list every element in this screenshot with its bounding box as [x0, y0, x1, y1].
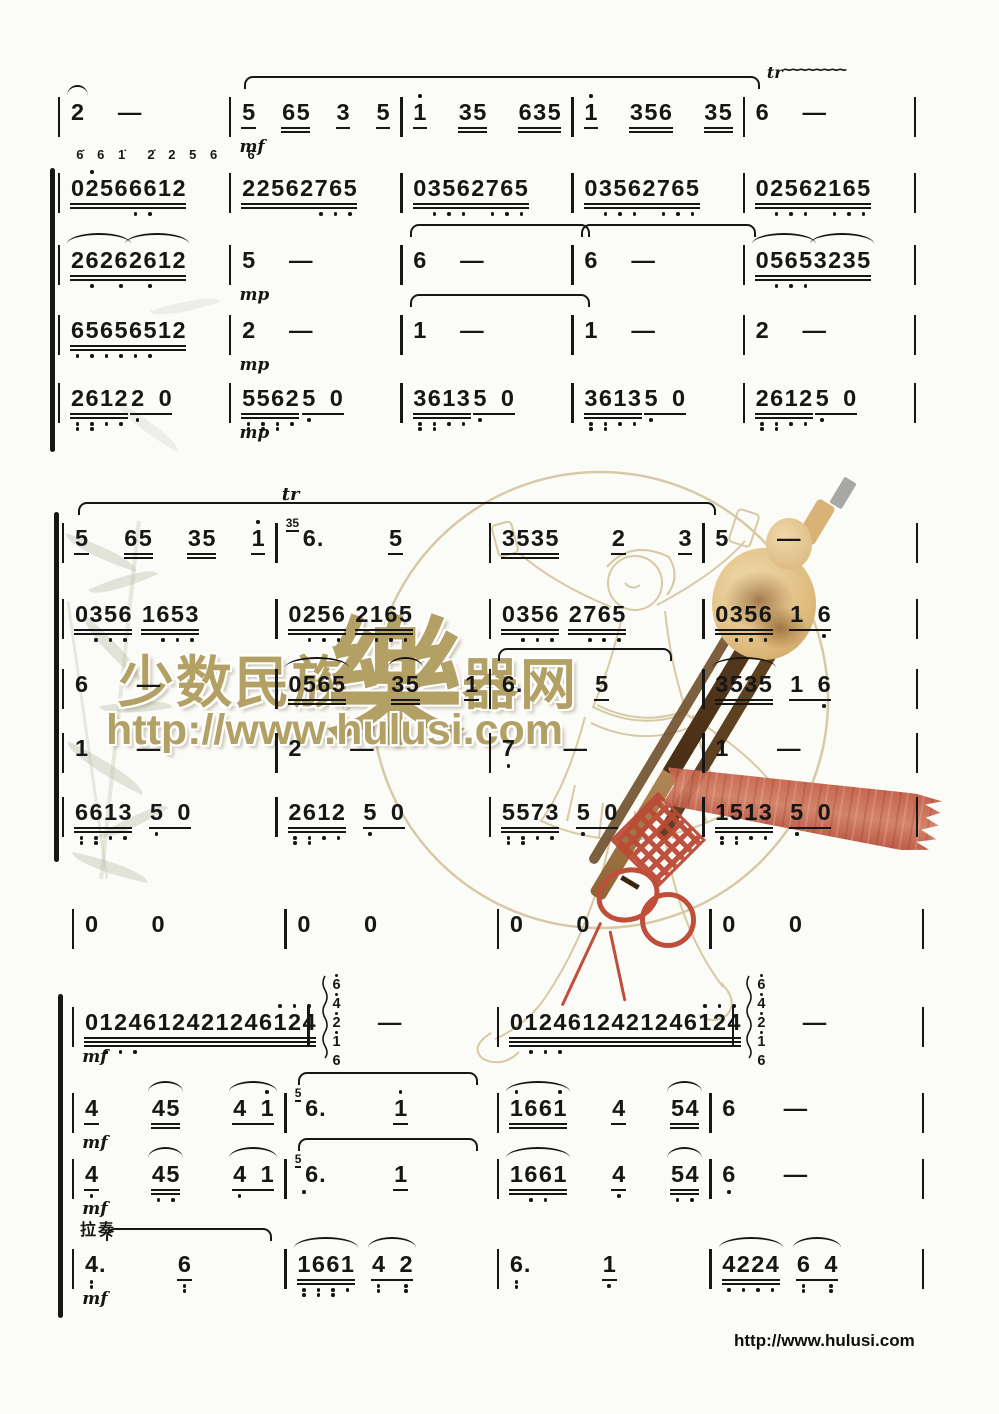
dot-cell	[151, 902, 166, 910]
dots-above	[130, 376, 172, 384]
note-group: —	[801, 90, 827, 125]
dot-cell	[500, 376, 515, 384]
dot-cell	[518, 90, 533, 98]
measure: 4.6mf	[74, 1242, 284, 1293]
octave-dot	[308, 836, 312, 840]
sheet-music-page: 少数民族 樂 器网 http://www.hulusi.com 2—56535m…	[0, 0, 999, 1414]
octave-dot	[190, 638, 194, 642]
note-digit: 5	[856, 175, 871, 201]
note-digits: 6	[413, 246, 428, 273]
dot-cell	[758, 790, 773, 798]
octave-dot	[433, 212, 437, 216]
note-digit: 4	[84, 1161, 99, 1187]
dots-above	[376, 90, 391, 98]
note-group: 35	[391, 662, 420, 705]
dot-cell	[584, 212, 599, 216]
note-digits: —	[776, 734, 802, 761]
dynamic-marking: mf	[82, 1047, 107, 1067]
octave-dot	[727, 1190, 731, 1194]
octave-dot	[822, 634, 826, 638]
octave-dot	[505, 212, 509, 216]
note-group: 1	[602, 1242, 617, 1289]
staff-row: 2—56535mf135635135635tr~~~~~~~~6—	[58, 90, 916, 137]
dot-cell	[118, 790, 133, 798]
dots-below	[584, 209, 642, 216]
note-digit: 2	[128, 247, 143, 273]
note-digit: 6	[538, 1161, 553, 1187]
note-digits: —	[349, 734, 375, 761]
staff-row: 4.6mf1661426.1422464	[72, 1242, 924, 1297]
beam-line	[722, 1279, 780, 1281]
beam-line	[142, 1045, 200, 1047]
dot-cell	[817, 592, 832, 600]
octave-dot	[581, 832, 585, 836]
octave-dot	[90, 284, 94, 288]
note-digit: 3	[532, 99, 547, 125]
dot-cell	[151, 1198, 166, 1202]
dot-cell	[157, 1000, 172, 1008]
dot-cell	[285, 422, 300, 431]
dot-cell	[471, 212, 486, 216]
note-digits: 0565	[288, 670, 346, 697]
dot-cell	[856, 212, 871, 216]
note-digits: —	[459, 316, 485, 343]
dots-below	[288, 635, 346, 642]
dot-cell	[377, 1000, 403, 1008]
octave-dot	[157, 1198, 161, 1202]
dot-cell	[755, 422, 770, 431]
dots-above	[501, 516, 559, 524]
note-digits: 7	[501, 734, 516, 761]
note-digits: 6	[584, 246, 599, 273]
octave-dot	[155, 832, 159, 836]
dot-cell	[782, 1152, 808, 1160]
dots-above	[251, 516, 266, 524]
octave-dot	[760, 993, 763, 996]
dot-cell	[671, 212, 686, 216]
note-digit: 1	[715, 799, 730, 825]
grace-note: 5	[295, 1153, 302, 1168]
grace-run: 6	[247, 147, 259, 162]
dot-cell	[149, 832, 164, 836]
arpeggio-wavy-line	[744, 974, 753, 1060]
note-digits: 0	[576, 910, 591, 937]
note-digits: 6124	[258, 1008, 316, 1035]
dots-below	[128, 351, 186, 358]
phrase-slur	[581, 224, 756, 237]
octave-dot	[607, 1284, 611, 1288]
octave-dot	[602, 638, 606, 642]
dots-above	[801, 90, 827, 98]
note-digit: 0	[788, 911, 803, 937]
note-digit: —	[377, 1009, 403, 1035]
note-digit: 2	[625, 1009, 640, 1035]
dot-cell	[74, 836, 89, 845]
dots-below	[130, 415, 172, 422]
dot-cell	[331, 790, 346, 798]
note-group: 635	[518, 90, 562, 133]
octave-dot	[109, 836, 113, 840]
dot-cell	[287, 1000, 302, 1008]
dot-cell	[813, 212, 828, 216]
dot-cell	[516, 592, 531, 600]
dot-cell	[671, 376, 686, 384]
note-digits: 50	[815, 384, 857, 411]
dot-cell	[143, 284, 158, 288]
octave-dot	[727, 1288, 731, 1292]
dot-cell	[118, 836, 133, 845]
note-group: 0356	[715, 592, 773, 642]
beam-line	[200, 1045, 258, 1047]
beam-line	[128, 275, 186, 277]
measure: 353523	[491, 516, 702, 559]
note-digit: 3	[813, 247, 828, 273]
beam-line	[288, 827, 346, 829]
note-digits: 35	[391, 670, 420, 697]
dot-cell	[755, 166, 770, 174]
note-group: 42	[371, 1242, 413, 1297]
note-digit: 5	[685, 175, 700, 201]
note-digit: 6	[285, 175, 300, 201]
note-digit: 1	[369, 601, 384, 627]
arpeggio-note: 6	[331, 974, 343, 993]
dots-below	[755, 419, 813, 431]
note-digit: 1	[157, 317, 172, 343]
dot-cell	[143, 166, 158, 174]
dot-cell	[755, 90, 770, 98]
note-group: tr~~~~~~~~6	[755, 90, 770, 125]
octave-dot	[589, 422, 593, 426]
note-group: 0	[576, 902, 591, 937]
measure-spacer	[346, 376, 391, 431]
slur-arc	[388, 657, 423, 668]
dot-cell	[516, 516, 531, 524]
measure-spacer	[186, 166, 231, 216]
dot-cell	[644, 376, 659, 384]
note-digit: 3	[598, 175, 613, 201]
note-digit: 0	[84, 911, 99, 937]
note-group: 0	[788, 902, 803, 937]
octave-dot	[462, 422, 466, 426]
dot-cell	[817, 790, 832, 798]
note-digits: 56.	[297, 1094, 326, 1121]
dot-cell	[584, 90, 599, 98]
note-digits: 2	[611, 524, 626, 551]
dot-cell	[244, 1000, 259, 1008]
note-digit: 6	[114, 175, 129, 201]
note-digit: 6	[796, 1251, 811, 1277]
dots-above	[789, 662, 831, 670]
note-group: 6.	[501, 662, 523, 701]
note-digit: 6	[281, 99, 296, 125]
dot-cell	[85, 354, 100, 358]
note-group: —	[782, 1152, 808, 1194]
dot-cell	[755, 284, 770, 288]
note-group: 0356	[413, 166, 471, 216]
dot-cell	[604, 790, 619, 798]
note-digit: 0	[74, 601, 89, 627]
note-digit: 2	[471, 175, 486, 201]
dot-cell	[801, 308, 827, 316]
dots-above	[501, 662, 523, 670]
note-digit: 7	[501, 735, 516, 761]
barline	[922, 909, 924, 949]
note-digits: 3613	[413, 384, 471, 411]
beam-line	[715, 629, 773, 631]
note-digits: 16	[789, 670, 831, 697]
dot-cell	[856, 166, 871, 174]
note-group: 35	[458, 90, 487, 133]
phrase-slur	[298, 1072, 478, 1085]
dot-cell	[232, 1194, 247, 1198]
dot-cell	[671, 418, 686, 422]
note-digit: 5	[576, 799, 591, 825]
measure: 6—	[712, 1152, 922, 1194]
octave-dot	[447, 212, 451, 216]
dot-cell	[103, 638, 118, 642]
note-digit: —	[782, 1161, 808, 1187]
beam-line	[501, 827, 559, 829]
dot-cell	[613, 422, 628, 431]
beam-line	[70, 275, 128, 277]
note-digit: 2	[712, 1009, 727, 1035]
note-digits: —	[801, 1008, 827, 1035]
dot-cell	[74, 726, 89, 734]
note-digits: 35	[187, 524, 216, 551]
dot-cell	[258, 1000, 273, 1008]
note-digits: 3535	[715, 670, 773, 697]
note-digits: 45	[151, 1094, 180, 1121]
dots-above	[355, 592, 413, 600]
dots-above	[602, 1242, 617, 1250]
note-digit: 2	[241, 317, 256, 343]
note-digit: 5	[516, 799, 531, 825]
dot-cell	[427, 212, 442, 216]
note-digit: 5	[241, 99, 256, 125]
note-digit: 0	[413, 175, 428, 201]
dot-cell	[715, 592, 730, 600]
dot-cell	[568, 638, 583, 642]
barline	[914, 383, 916, 423]
dots-above	[611, 1152, 626, 1160]
dot-cell	[241, 308, 256, 316]
note-digits: 2256	[241, 174, 299, 201]
note-digits: 0356	[74, 600, 132, 627]
note-digit: 3	[704, 99, 719, 125]
dot-cell	[758, 638, 773, 642]
beam-line	[142, 1037, 200, 1039]
dots-above	[813, 166, 871, 174]
dots-above	[149, 790, 191, 798]
dot-cell	[501, 516, 516, 524]
note-group: 0565	[288, 662, 346, 705]
dot-cell	[755, 376, 770, 384]
note-group: 3	[678, 516, 693, 559]
dot-cell	[804, 634, 817, 638]
dots-below	[74, 833, 132, 845]
note-digit: 1	[509, 1161, 524, 1187]
note-digit: 2	[611, 525, 626, 551]
beam-line	[281, 131, 310, 133]
note-digit: 5	[85, 317, 100, 343]
measure: 261250	[745, 376, 914, 431]
octave-dot	[377, 1284, 381, 1288]
dot-cell	[340, 1288, 355, 1297]
dots-below	[473, 415, 515, 422]
dot-cell	[251, 516, 266, 524]
beam-line	[70, 413, 128, 415]
beam-line	[258, 1041, 316, 1043]
dots-above	[704, 90, 733, 98]
dots-above	[471, 166, 529, 174]
note-digit: 2	[172, 175, 187, 201]
dot-cell	[117, 90, 143, 98]
note-group: 1661	[297, 1242, 355, 1297]
note-digit: 4	[232, 1095, 247, 1121]
dot-cell	[288, 308, 314, 316]
note-digits: 0124	[84, 1008, 142, 1035]
octave-dot	[302, 1190, 306, 1194]
note-digit: 5	[784, 175, 799, 201]
note-digits: —	[135, 734, 161, 761]
dot-cell	[172, 212, 187, 216]
note-group: —	[782, 1086, 808, 1121]
dot-cell	[532, 90, 547, 98]
note-digit: 1	[215, 1009, 230, 1035]
measure: 0565351	[278, 662, 489, 705]
note-digits: 0	[151, 910, 166, 937]
note-group: —	[630, 308, 656, 343]
dots-above	[562, 726, 588, 734]
dots-above	[789, 790, 831, 798]
dot-cell	[501, 662, 516, 670]
dot-cell	[185, 638, 200, 642]
measure-spacer	[859, 308, 904, 343]
note-group: 50	[473, 376, 515, 431]
note-digits: 1	[602, 1250, 617, 1277]
dot-cell	[815, 418, 830, 422]
note-digit: 4	[611, 1161, 626, 1187]
dot-cell	[804, 832, 817, 836]
note-digits: 2124	[625, 1008, 683, 1035]
octave-dot	[536, 836, 540, 840]
beam-line	[567, 1041, 625, 1043]
octave-dot	[76, 427, 80, 431]
dot-cell	[413, 166, 428, 174]
dot-cell	[782, 1086, 808, 1094]
dot-cell	[288, 836, 303, 845]
note-digit: 4	[824, 1251, 839, 1277]
dots-above	[84, 1152, 99, 1160]
note-digit: 2	[70, 247, 85, 273]
beam-line	[258, 1037, 316, 1039]
dot-cell	[473, 418, 488, 422]
beam-line	[376, 127, 391, 129]
note-digit: 2	[285, 385, 300, 411]
measure: 1661454	[499, 1086, 709, 1129]
dot-cell	[145, 418, 158, 422]
dot-cell	[427, 166, 442, 174]
octave-dot	[80, 836, 84, 840]
note-digit: 6	[74, 799, 89, 825]
octave-dot	[331, 1288, 335, 1292]
dot-cell	[751, 1288, 766, 1292]
note-digit: 1	[317, 799, 332, 825]
note-digit: —	[630, 247, 656, 273]
octave-dot	[604, 422, 608, 426]
dot-cell	[683, 1000, 698, 1008]
note-group: 0	[509, 902, 524, 937]
note-digit: 2	[200, 1009, 215, 1035]
dots-above	[74, 662, 89, 670]
note-group: 2	[755, 308, 770, 343]
beam-line	[813, 275, 871, 277]
phrase-slur	[410, 294, 590, 307]
beam-line	[594, 699, 609, 701]
note-digits: 6.	[509, 1250, 531, 1277]
measure-spacer	[475, 1086, 486, 1125]
note-group: 1	[584, 90, 599, 133]
note-digit: 2	[798, 385, 813, 411]
beam-line	[611, 553, 626, 555]
note-digit: 6	[270, 385, 285, 411]
dots-above	[241, 376, 299, 384]
beam-line	[715, 827, 773, 829]
note-digit: 2	[355, 601, 370, 627]
note-digit: 2	[568, 601, 583, 627]
octave-dot	[690, 1198, 694, 1202]
note-digit: 5	[670, 1161, 685, 1187]
dot-cell	[296, 90, 311, 98]
dot-cell	[288, 592, 303, 600]
dot-cell	[509, 1198, 524, 1202]
measure-spacer	[346, 238, 391, 273]
dot-cell	[164, 832, 177, 836]
dot-cell	[744, 592, 759, 600]
octave-dot	[94, 836, 98, 840]
note-digit: 5	[256, 385, 271, 411]
note-digit: 6	[722, 1095, 737, 1121]
note-digit: 1	[784, 385, 799, 411]
beam-line	[683, 1045, 741, 1047]
note-digits: 2612	[128, 246, 186, 273]
measure-spacer	[848, 662, 905, 708]
note-digit: 6	[304, 1095, 319, 1121]
note-digits: 5	[241, 98, 256, 125]
dots-above	[413, 376, 471, 384]
dots-above	[776, 516, 802, 524]
dot-cell	[427, 376, 442, 384]
note-group: 2	[70, 90, 85, 125]
arpeggio-notes: 64216	[755, 974, 767, 1069]
note-group: 1	[413, 308, 428, 343]
note-digit: 0	[584, 175, 599, 201]
dots-above	[594, 662, 609, 670]
dot-cell	[84, 1194, 99, 1198]
note-digits: 56.	[297, 1160, 326, 1187]
octave-dot	[123, 836, 127, 840]
note-group: 6612	[128, 166, 186, 216]
dot-cell	[789, 832, 804, 836]
note-digit: 1	[553, 1161, 568, 1187]
slur-arc	[148, 1147, 183, 1158]
dot-cell	[744, 638, 759, 642]
dot-cell	[138, 516, 153, 524]
dot-cell	[685, 166, 700, 174]
note-digits: 6124	[683, 1008, 741, 1035]
dots-above	[715, 592, 773, 600]
note-digit: 2	[113, 1009, 128, 1035]
